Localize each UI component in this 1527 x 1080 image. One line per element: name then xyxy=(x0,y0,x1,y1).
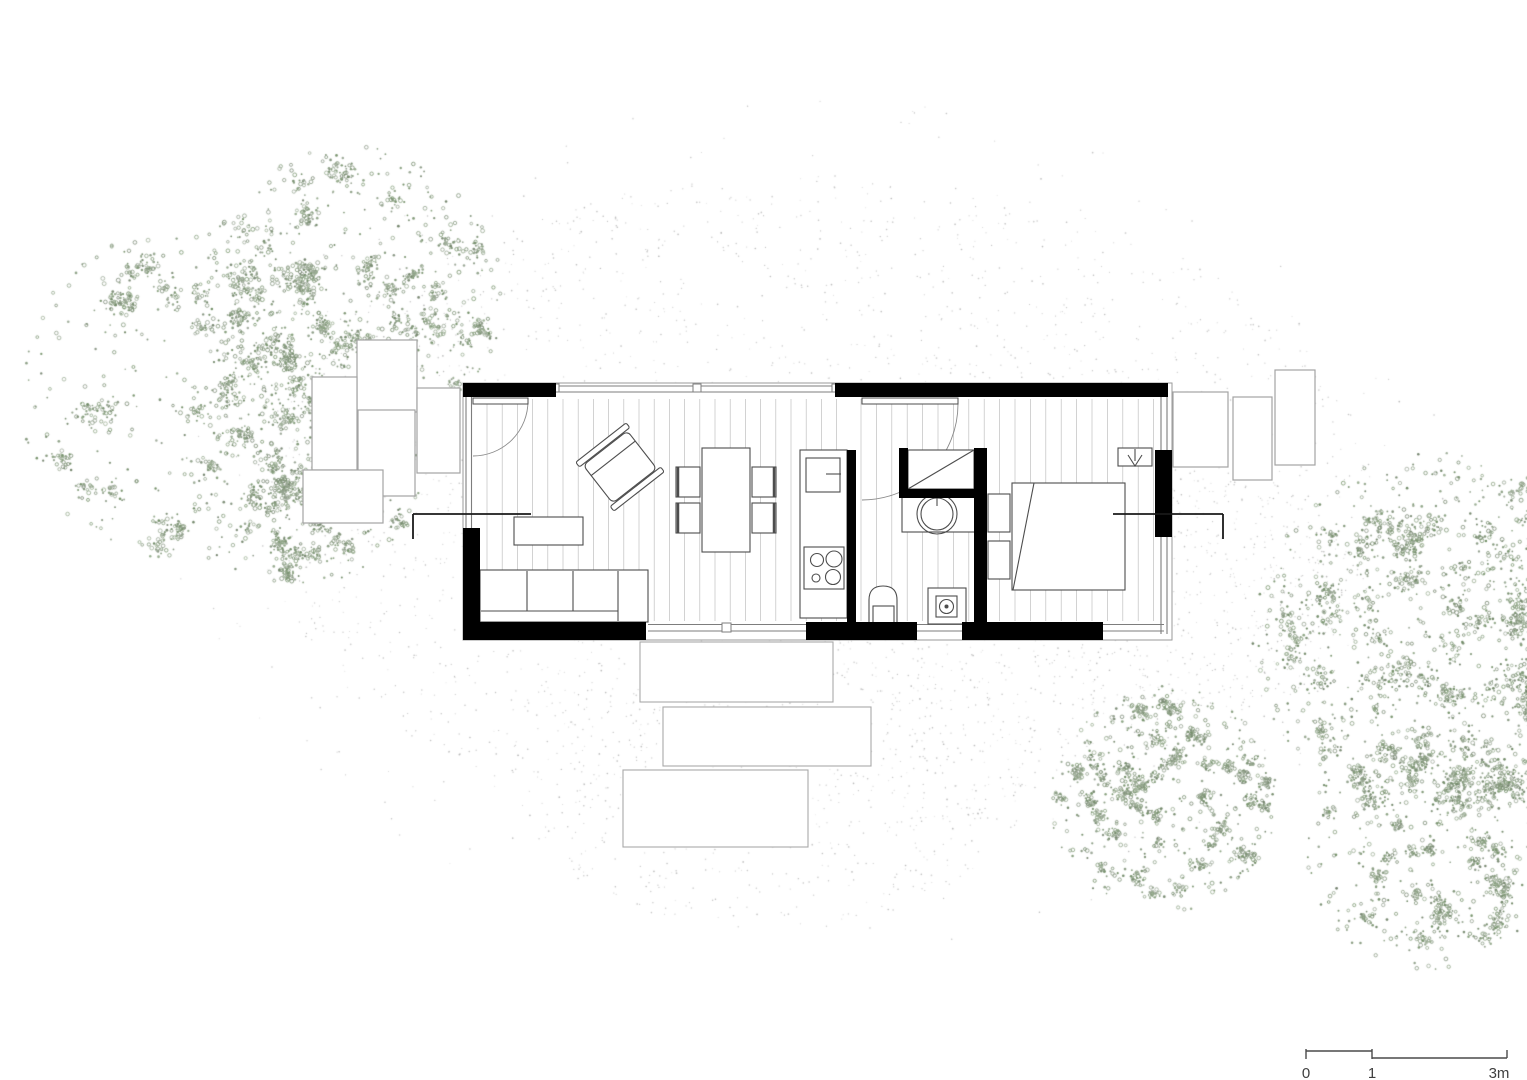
site-plan-stage: 0 1 3m xyxy=(0,0,1527,1080)
scale-label-3m: 3m xyxy=(1489,1065,1510,1080)
scale-bar: 0 1 3m xyxy=(0,0,1527,1080)
scale-label-0: 0 xyxy=(1302,1065,1310,1080)
scale-label-1: 1 xyxy=(1368,1065,1376,1080)
scale-bar-lines xyxy=(1306,1049,1507,1059)
